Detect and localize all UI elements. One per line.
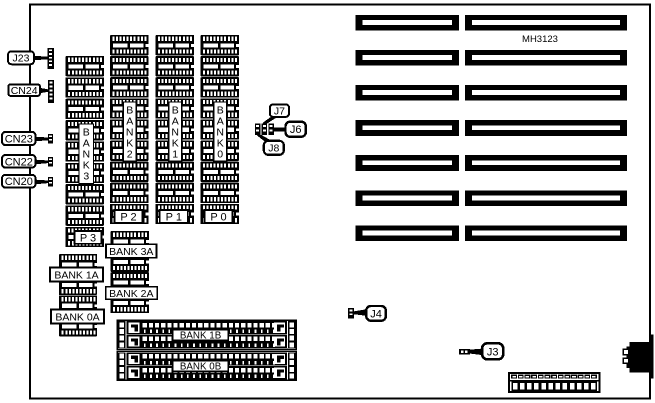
svg-text:CN22: CN22 xyxy=(5,156,33,168)
svg-text:P 0: P 0 xyxy=(210,211,226,223)
svg-text:1: 1 xyxy=(172,149,178,161)
svg-text:0: 0 xyxy=(217,149,223,161)
svg-text:BANK 1A: BANK 1A xyxy=(54,269,98,281)
svg-text:J6: J6 xyxy=(290,124,302,136)
svg-text:BANK 3A: BANK 3A xyxy=(109,246,153,258)
svg-text:MH3123: MH3123 xyxy=(522,34,558,45)
svg-text:J7: J7 xyxy=(274,105,285,117)
svg-text:P 2: P 2 xyxy=(120,211,136,223)
svg-text:J4: J4 xyxy=(370,308,382,320)
svg-text:BANK 1B: BANK 1B xyxy=(180,330,222,341)
svg-text:2: 2 xyxy=(127,149,133,161)
svg-text:J23: J23 xyxy=(13,53,30,65)
svg-text:J3: J3 xyxy=(487,346,499,358)
svg-text:P 3: P 3 xyxy=(80,232,96,244)
svg-text:CN24: CN24 xyxy=(11,85,38,97)
svg-text:CN23: CN23 xyxy=(5,133,33,145)
svg-text:BANK 2A: BANK 2A xyxy=(109,288,153,300)
svg-text:P 1: P 1 xyxy=(166,211,182,223)
svg-text:BANK 0B: BANK 0B xyxy=(180,362,222,373)
svg-text:J8: J8 xyxy=(268,143,279,155)
svg-text:BANK 0A: BANK 0A xyxy=(55,311,99,323)
svg-text:3: 3 xyxy=(83,171,89,183)
svg-text:CN20: CN20 xyxy=(5,176,33,188)
